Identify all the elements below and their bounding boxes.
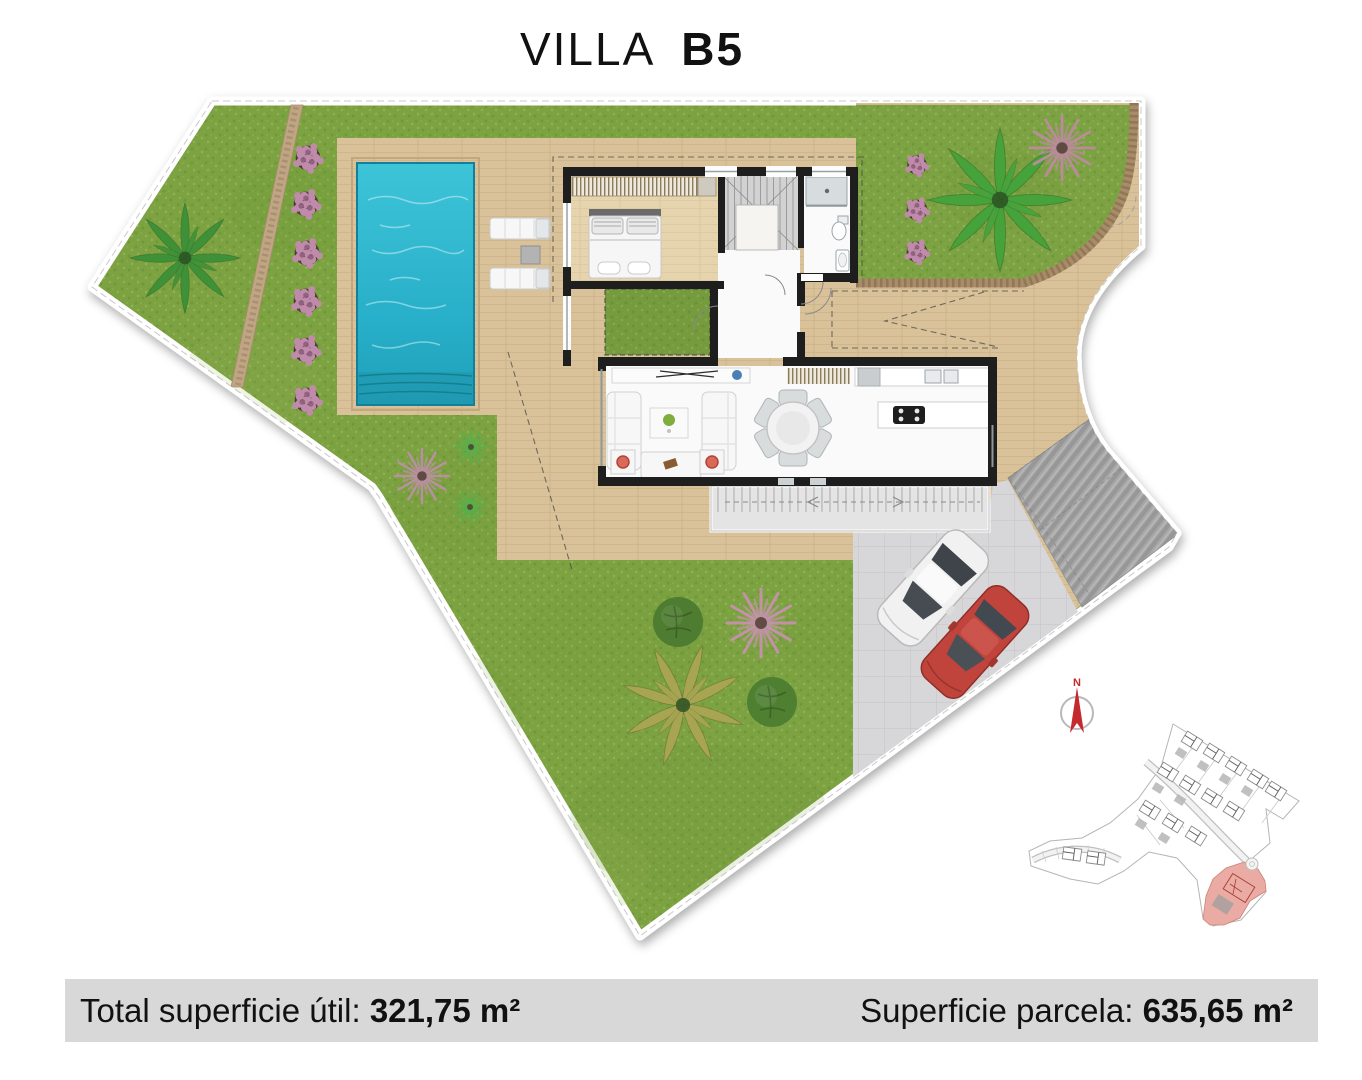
pool-steps: [358, 372, 473, 404]
site-location-map: [1029, 724, 1299, 926]
swimming-pool: [352, 158, 479, 410]
map-roundabout: [1246, 858, 1258, 870]
plot-area-label: Superficie parcela:: [860, 992, 1142, 1029]
terrace-steps: [711, 486, 989, 531]
wardrobe: [572, 177, 716, 196]
hob-icon: [893, 406, 925, 424]
bench: [641, 452, 701, 478]
slatted-window: [787, 368, 850, 384]
double-bed: [589, 209, 661, 278]
total-useful-area-value: 321,75 m²: [370, 992, 520, 1029]
total-useful-area-label: Total superficie útil:: [80, 992, 370, 1029]
plot-area: Superficie parcela: 635,65 m²: [860, 992, 1293, 1030]
side-table-right: [700, 450, 724, 474]
palm-tree-top-right: [928, 128, 1072, 272]
vase: [732, 370, 742, 380]
dining-table: [767, 402, 819, 454]
palm-tree-left: [130, 203, 240, 313]
round-bush-2: [747, 677, 797, 727]
kitchen-sink: [925, 370, 941, 383]
side-table-left: [611, 450, 635, 474]
footer-bar: Total superficie útil: 321,75 m² Superfi…: [65, 979, 1318, 1042]
compass-icon: N: [1061, 677, 1093, 733]
compass-north-label: N: [1073, 677, 1081, 689]
site-plan: N: [0, 0, 1362, 1080]
staircase: [722, 175, 798, 250]
hallway-floor: [718, 250, 800, 358]
lounger-side-table: [521, 246, 540, 264]
total-useful-area: Total superficie útil: 321,75 m²: [80, 992, 520, 1030]
round-bush-1: [653, 597, 703, 647]
coffee-table: [650, 408, 688, 438]
fridge: [858, 368, 880, 386]
courtyard-patio: [605, 289, 710, 355]
plot-area-value: 635,65 m²: [1143, 992, 1293, 1029]
tv-sideboard: [612, 368, 750, 383]
